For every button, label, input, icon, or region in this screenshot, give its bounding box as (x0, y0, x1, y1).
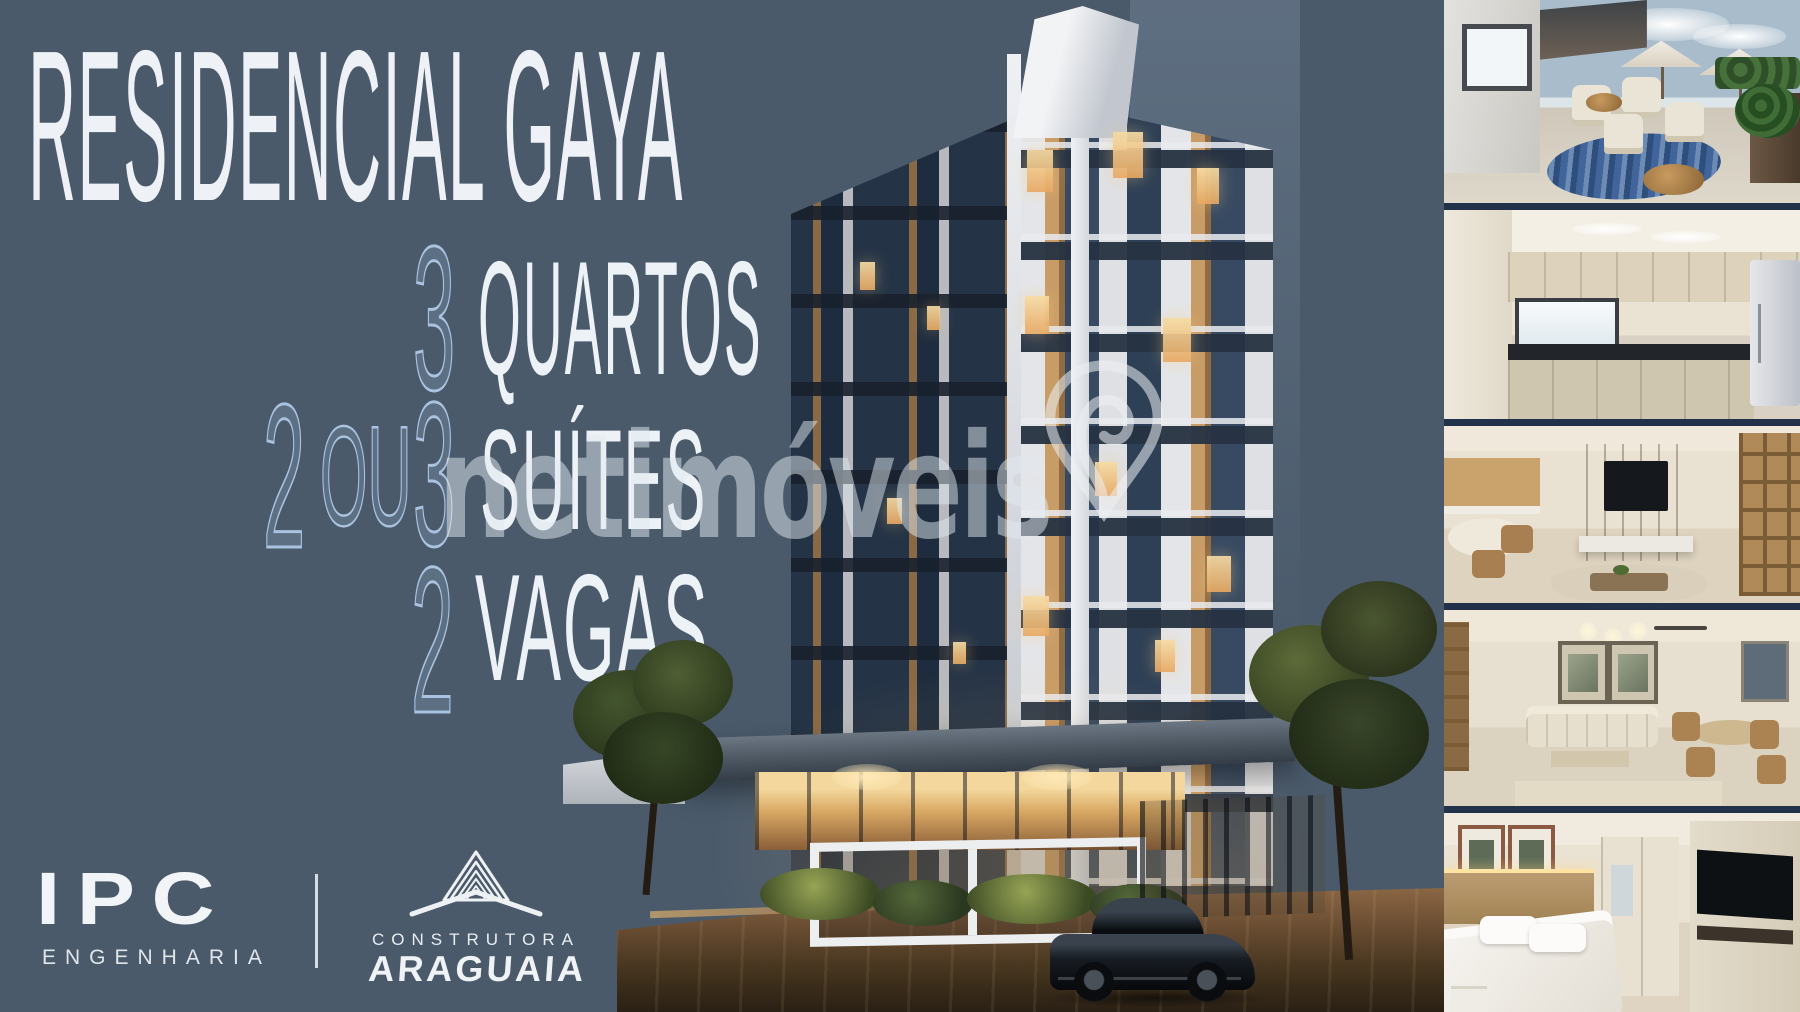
car-wheel (1187, 962, 1227, 1002)
ceiling-spot (1579, 622, 1597, 640)
map-pin-icon (1040, 356, 1168, 526)
sports-car (1050, 896, 1255, 1002)
dining-chair (1501, 525, 1533, 553)
terrace-window (1462, 24, 1533, 91)
street-wall (563, 748, 685, 804)
ceiling-light (1572, 223, 1642, 235)
tv-screen (1697, 849, 1793, 919)
ceiling-fan (1654, 626, 1707, 630)
tree-foliage (573, 670, 683, 760)
kitchenette-counter (1444, 458, 1540, 515)
gallery-photo-terrace (1444, 0, 1800, 203)
window-light (1023, 596, 1049, 636)
wall-art (1558, 641, 1609, 704)
kitchen-wall (1444, 210, 1512, 419)
qty-suites-min: 2 (263, 374, 305, 579)
bookshelf (1444, 622, 1469, 771)
terrace-chair (1665, 102, 1704, 143)
window-light (1197, 168, 1219, 204)
ipc-logo-subtitle: ENGENHARIA (42, 946, 271, 970)
terrace-chair (1622, 77, 1661, 118)
ad-banner: RESIDENCIAL GAYA 3 QUARTOS 2 OU 3 SUÍTES… (0, 0, 1800, 1012)
terrace-table (1643, 164, 1704, 194)
window-light (927, 306, 940, 330)
ceiling-spot (1629, 622, 1647, 640)
araguaia-logo-line2: ARAGUAIA (367, 948, 588, 990)
mirror (1611, 865, 1632, 917)
pillow (1480, 916, 1537, 944)
watermark-text: netimóveis (438, 415, 1050, 560)
bush (873, 880, 973, 926)
window (1741, 641, 1790, 702)
window-light (1027, 150, 1053, 192)
pyramid-roof-icon (406, 848, 546, 930)
cloud (1693, 24, 1786, 48)
gallery-photo-bedroom (1444, 813, 1800, 1012)
nightstand (1451, 986, 1487, 1012)
conjunction-ou: OU (320, 406, 412, 548)
pillow (1529, 924, 1586, 952)
lobby-light (832, 764, 902, 790)
photo-gallery (1444, 0, 1800, 1012)
lobby-light (1022, 764, 1092, 790)
logo-divider (315, 874, 318, 968)
dining-chair (1686, 747, 1714, 776)
window-light (1207, 556, 1231, 592)
coffee-table (1590, 573, 1668, 591)
car-wheel (1074, 962, 1114, 1002)
gallery-photo-living-tv (1444, 426, 1800, 603)
window-light (860, 262, 875, 290)
car-shadow (1040, 988, 1269, 1008)
window-light (1025, 296, 1049, 334)
terrace-planter (1750, 93, 1800, 182)
wall-art (1608, 641, 1659, 704)
media-console (1579, 536, 1693, 552)
bush (760, 868, 880, 920)
kitchen-fridge (1750, 260, 1800, 406)
dining-chair (1757, 755, 1785, 784)
kitchen-countertop (1508, 344, 1754, 361)
tv-screen (1604, 461, 1668, 511)
terrace-chair (1604, 114, 1643, 155)
araguaia-logo-line1: CONSTRUTORA (372, 930, 580, 950)
ceiling-light (1650, 231, 1720, 243)
gallery-photo-living-dining (1444, 610, 1800, 806)
terrace-table (1586, 93, 1622, 111)
area-rug (1515, 781, 1721, 806)
dining-chair (1672, 712, 1700, 741)
window-light (1113, 132, 1143, 178)
terrace-pergola-roof (1529, 0, 1646, 61)
dining-chair (1472, 550, 1504, 578)
coffee-table (1551, 751, 1629, 767)
tower-parapet-cap (1005, 6, 1139, 138)
gallery-photo-kitchen (1444, 210, 1800, 419)
tree-trunk (642, 790, 658, 895)
bookshelf (1739, 433, 1800, 596)
tree-foliage (1321, 581, 1437, 677)
dining-chair (1750, 720, 1778, 749)
umbrella-pole (1661, 67, 1664, 99)
kitchen-base-cabinets (1508, 360, 1754, 419)
sofa (1526, 706, 1658, 747)
ipc-logo: IPC (36, 862, 231, 936)
